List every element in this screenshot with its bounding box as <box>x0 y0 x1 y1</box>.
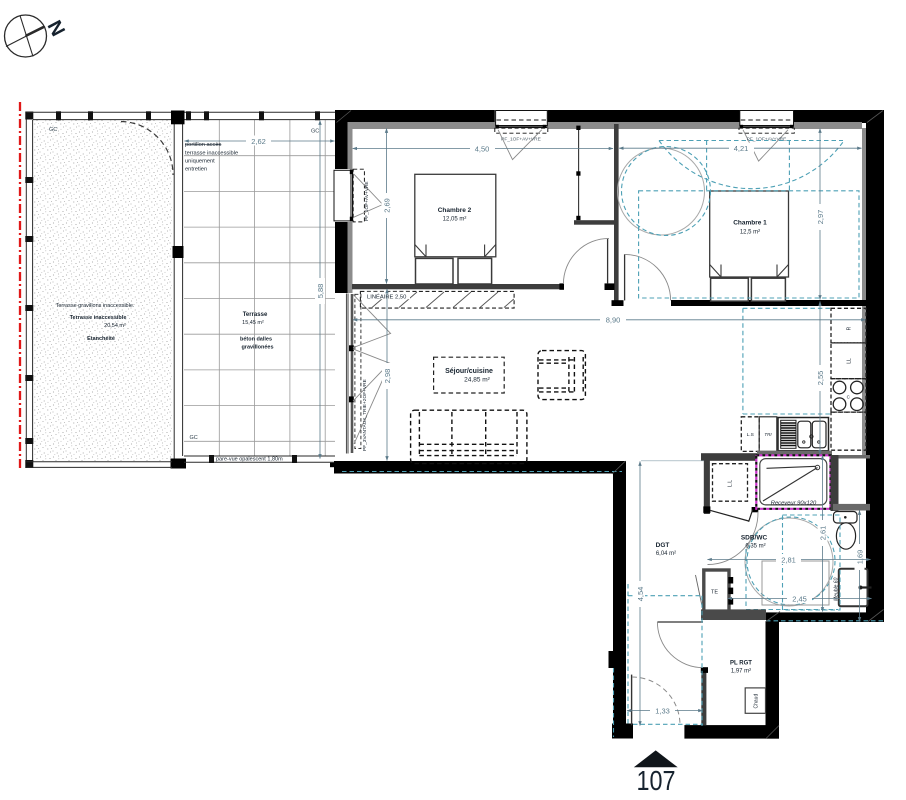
svg-text:uniquement: uniquement <box>185 159 215 165</box>
svg-text:DGT: DGT <box>656 542 670 549</box>
svg-text:Etanchéité: Etanchéité <box>87 336 115 342</box>
svg-text:107: 107 <box>637 765 676 796</box>
svg-text:R: R <box>847 326 853 330</box>
svg-text:pare-vue opalescent 1,80m: pare-vue opalescent 1,80m <box>216 457 283 463</box>
svg-text:Meuble 60: Meuble 60 <box>833 577 839 601</box>
svg-text:2,61: 2,61 <box>818 526 827 541</box>
svg-text:Chambre 2: Chambre 2 <box>438 207 472 214</box>
svg-text:PF_1OF+AV+VRE: PF_1OF+AV+VRE <box>501 137 541 143</box>
svg-text:PF_3VANTAUX_TRIE+2OF+VRE: PF_3VANTAUX_TRIE+2OF+VRE <box>362 379 368 451</box>
svg-text:6,04 m²: 6,04 m² <box>656 551 676 557</box>
svg-text:gravillonées: gravillonées <box>241 345 273 351</box>
svg-text:béton dalles: béton dalles <box>240 337 272 343</box>
svg-text:SDB/WC: SDB/WC <box>741 535 768 542</box>
svg-text:GC: GC <box>49 127 57 133</box>
svg-text:Chambre 1: Chambre 1 <box>733 220 767 227</box>
svg-text:Terrasse inaccessible: Terrasse inaccessible <box>70 315 127 321</box>
svg-text:4,50: 4,50 <box>475 144 490 153</box>
svg-text:24,85 m²: 24,85 m² <box>464 377 490 384</box>
svg-text:GC: GC <box>190 435 198 441</box>
svg-text:PF_1OF+AV+VRE: PF_1OF+AV+VRE <box>747 137 787 143</box>
svg-text:2,45: 2,45 <box>792 594 807 603</box>
svg-text:Terrasse: Terrasse <box>243 312 268 318</box>
svg-text:TE: TE <box>711 590 718 596</box>
svg-text:terrasse inaccessible: terrasse inaccessible <box>185 151 238 157</box>
svg-text:2,55: 2,55 <box>816 371 825 386</box>
svg-text:GC: GC <box>311 129 319 135</box>
svg-text:2,97: 2,97 <box>816 210 825 225</box>
svg-text:12,05 m²: 12,05 m² <box>443 217 467 223</box>
svg-text:TRI: TRI <box>764 432 772 437</box>
svg-text:2,62: 2,62 <box>251 137 266 146</box>
svg-text:15,45 m²: 15,45 m² <box>242 320 264 326</box>
svg-text:1,69: 1,69 <box>855 550 864 565</box>
svg-text:Séjour/cuisine: Séjour/cuisine <box>445 368 493 375</box>
svg-text:2,81: 2,81 <box>781 555 796 564</box>
svg-text:PL RGT: PL RGT <box>730 661 752 667</box>
svg-text:L.S: L.S <box>747 432 754 438</box>
svg-text:portillon accès: portillon accès <box>185 142 222 148</box>
svg-text:8,90: 8,90 <box>606 316 621 325</box>
svg-text:2,69: 2,69 <box>382 198 391 213</box>
svg-text:2,98: 2,98 <box>383 369 392 384</box>
svg-text:1,97 m²: 1,97 m² <box>731 669 751 675</box>
svg-text:L.L: L.L <box>728 480 734 487</box>
svg-text:4,54: 4,54 <box>636 587 645 602</box>
svg-text:4,21: 4,21 <box>734 144 749 153</box>
svg-text:entretien: entretien <box>185 167 207 173</box>
svg-text:20,54 m²: 20,54 m² <box>104 323 126 329</box>
svg-text:Chaud: Chaud <box>754 694 760 709</box>
svg-text:1,33: 1,33 <box>655 706 670 715</box>
svg-text:Receveur 90x120: Receveur 90x120 <box>771 501 817 507</box>
svg-text:6,35 m²: 6,35 m² <box>745 544 765 550</box>
svg-text:LL: LL <box>847 358 853 364</box>
svg-text:PF_1OF+AV+VRE: PF_1OF+AV+VRE <box>364 181 370 221</box>
svg-text:Terrasse gravillons inaccessib: Terrasse gravillons inaccessible. <box>56 303 135 309</box>
svg-text:5,88: 5,88 <box>316 284 325 299</box>
svg-text:12,5 m²: 12,5 m² <box>740 230 760 236</box>
